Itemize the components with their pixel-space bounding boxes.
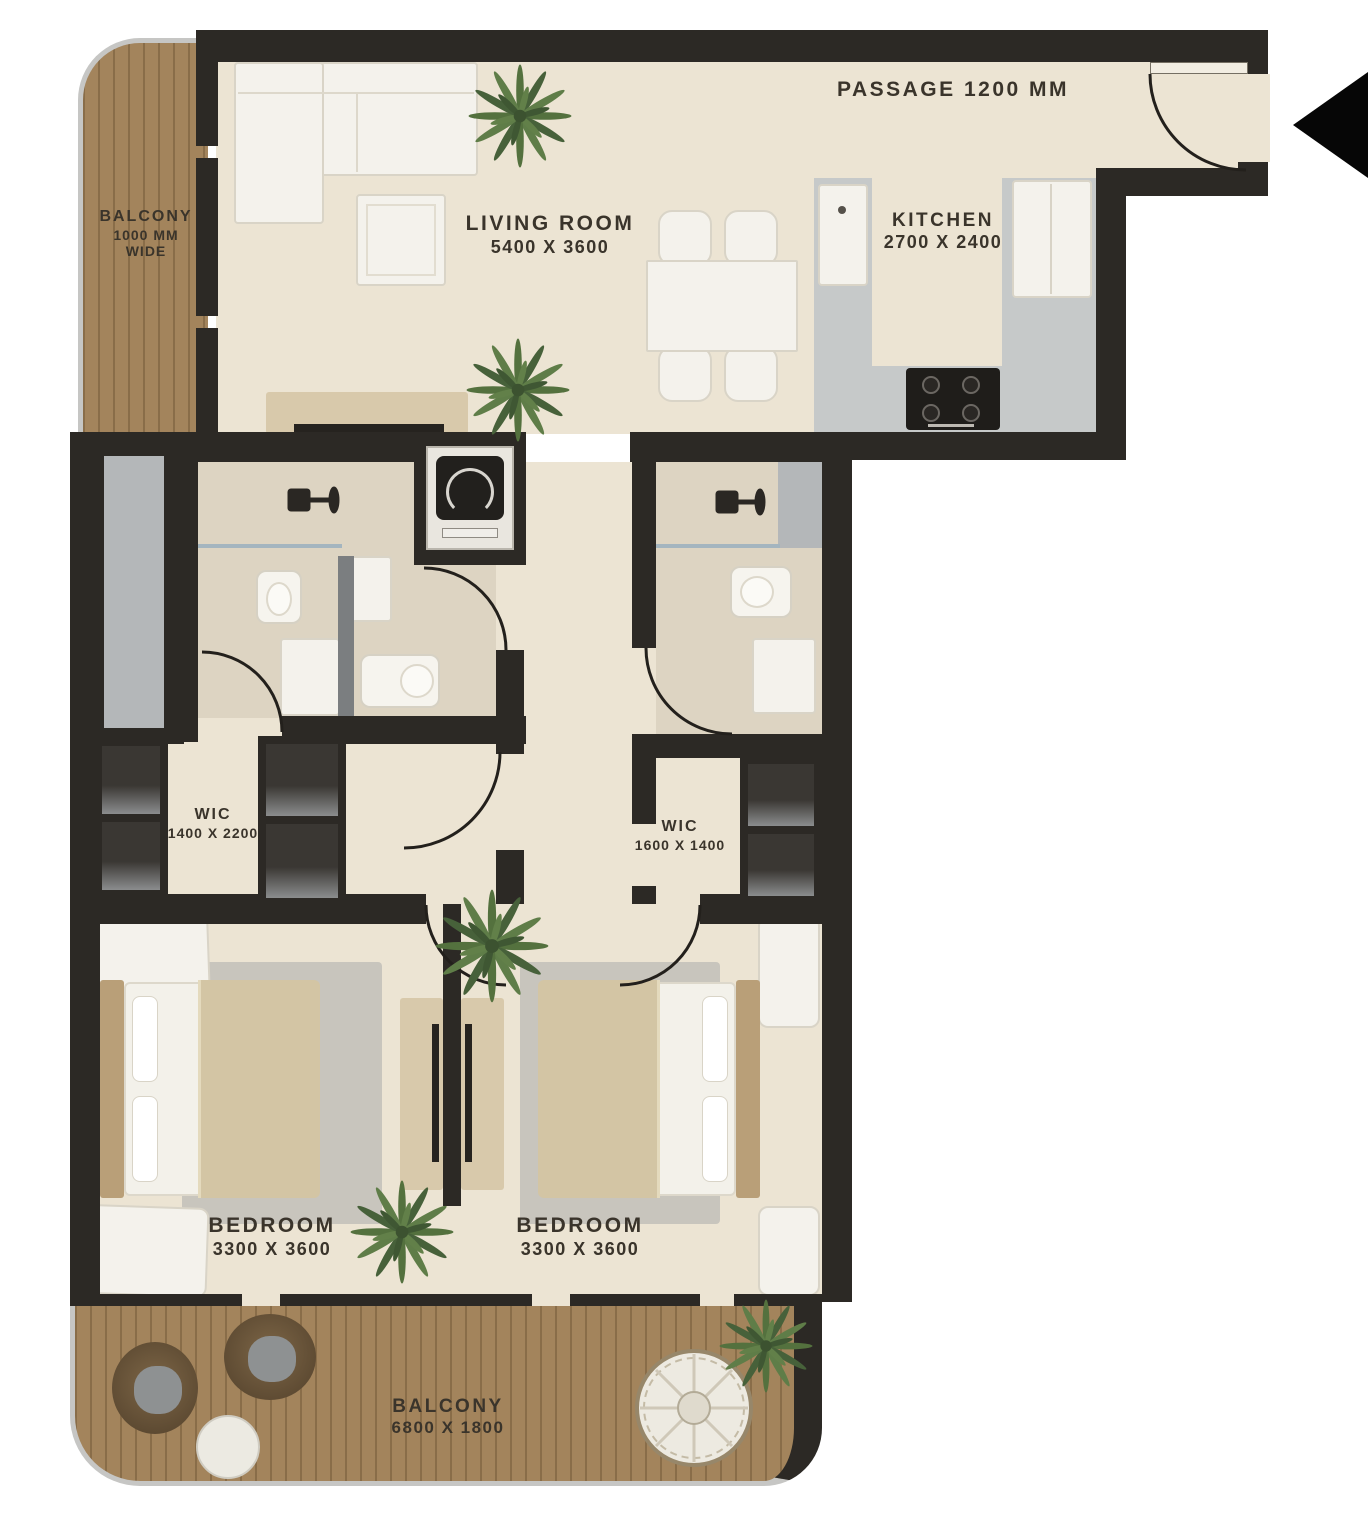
room-dims: 3300 X 3600 bbox=[516, 1239, 643, 1260]
wall-sink bbox=[350, 556, 392, 622]
room-dims: 5400 X 3600 bbox=[466, 237, 635, 258]
chair-cushion bbox=[134, 1366, 182, 1414]
washer-drum-arc bbox=[446, 468, 494, 516]
kitchen-label: KITCHEN 2700 X 2400 bbox=[884, 210, 1003, 254]
room-name: BEDROOM bbox=[516, 1214, 643, 1239]
wall-wic1-right bbox=[496, 850, 524, 904]
shower-glass-right bbox=[656, 544, 780, 548]
window-gap bbox=[242, 1294, 280, 1306]
cooktop bbox=[906, 368, 1000, 430]
entrance-arrow-icon bbox=[1293, 72, 1368, 178]
wall-outer-right bbox=[822, 432, 852, 1302]
room-name: WIC bbox=[635, 818, 725, 837]
toilet bbox=[256, 570, 302, 624]
shelf-box bbox=[102, 746, 160, 814]
lounge-chair bbox=[758, 1206, 820, 1296]
fridge bbox=[1012, 180, 1092, 298]
shelf-box bbox=[102, 822, 160, 890]
dining-chair bbox=[658, 346, 712, 402]
wall-segment bbox=[196, 62, 218, 146]
pillow bbox=[702, 996, 728, 1082]
lounge-chair bbox=[88, 1204, 209, 1298]
toilet bbox=[730, 566, 792, 618]
dining-chair bbox=[724, 210, 778, 266]
entry-gap-floor bbox=[1240, 74, 1270, 162]
blanket bbox=[198, 980, 320, 1198]
bed-right bbox=[538, 980, 760, 1198]
wall-corridor-left bbox=[496, 650, 524, 718]
wardrobe-handle bbox=[432, 1024, 439, 1162]
window-gap bbox=[700, 1294, 734, 1306]
wall-mid-top bbox=[630, 432, 852, 462]
room-name: KITCHEN bbox=[884, 210, 1003, 232]
burner bbox=[922, 376, 940, 394]
room-name: LIVING ROOM bbox=[466, 212, 635, 237]
passage-label: PASSAGE 1200 MM bbox=[837, 78, 1069, 103]
window-gap bbox=[532, 1294, 570, 1306]
floor-plan: BALCONY 1000 MM WIDE LIVING ROOM 5400 X … bbox=[0, 0, 1372, 1526]
balcony-top-label: BALCONY 1000 MM WIDE bbox=[99, 208, 192, 260]
room-name: BALCONY bbox=[99, 208, 192, 227]
shaft-panel bbox=[104, 456, 164, 728]
wall-bedrooms-top bbox=[700, 894, 822, 924]
lounge-chair bbox=[758, 916, 820, 1028]
dining-chair bbox=[724, 346, 778, 402]
room-dims: 2700 X 2400 bbox=[884, 232, 1003, 253]
island-faucet bbox=[838, 206, 846, 214]
room-dims: 1600 X 1400 bbox=[635, 837, 725, 854]
headboard bbox=[100, 980, 124, 1198]
bed-left bbox=[100, 980, 322, 1198]
room-name: BEDROOM bbox=[208, 1214, 335, 1239]
shelf-box bbox=[748, 834, 814, 896]
room-dims: WIDE bbox=[99, 243, 192, 260]
island-sink-unit bbox=[818, 184, 868, 286]
wardrobe-handle bbox=[465, 1024, 472, 1162]
vanity-sink bbox=[280, 638, 340, 716]
room-name: WIC bbox=[168, 806, 258, 825]
vanity-sink bbox=[752, 638, 816, 714]
wall-bedroom-divider bbox=[443, 904, 461, 1206]
wall-bath2-left bbox=[632, 462, 656, 648]
room-dims: 6800 X 1800 bbox=[392, 1418, 505, 1438]
wall-bath1-bottom bbox=[282, 716, 526, 744]
pillow bbox=[132, 996, 158, 1082]
cooktop-controls bbox=[928, 424, 974, 427]
burner bbox=[962, 376, 980, 394]
dining-table bbox=[646, 260, 798, 352]
entrance-door-leaf bbox=[1150, 62, 1248, 74]
wic-left-label: WIC 1400 X 2200 bbox=[168, 806, 258, 841]
dining-chair bbox=[658, 210, 712, 266]
shower-panel-right bbox=[778, 458, 822, 548]
headboard bbox=[736, 980, 760, 1198]
room-dims: 1000 MM bbox=[99, 227, 192, 244]
shower-glass-left bbox=[196, 544, 342, 548]
sofa-chaise bbox=[234, 62, 324, 224]
shelf-box bbox=[266, 744, 338, 816]
fridge-door-line bbox=[1050, 184, 1052, 294]
shelf-box bbox=[748, 764, 814, 826]
wall-segment bbox=[196, 158, 218, 316]
balcony-side-table bbox=[196, 1415, 260, 1479]
wall-kitchen-bottom bbox=[845, 432, 1126, 460]
wall-top bbox=[196, 30, 1268, 62]
shelf-box bbox=[266, 824, 338, 898]
pillow bbox=[702, 1096, 728, 1182]
bedroom-left-label: BEDROOM 3300 X 3600 bbox=[208, 1214, 335, 1260]
bath-divider-gray bbox=[338, 556, 354, 728]
wic-right-label: WIC 1600 X 1400 bbox=[635, 818, 725, 853]
living-room-label: LIVING ROOM 5400 X 3600 bbox=[466, 212, 635, 258]
wall-bath2-bottom bbox=[632, 734, 824, 758]
room-dims: 3300 X 3600 bbox=[208, 1239, 335, 1260]
coffee-table-inner bbox=[366, 204, 436, 276]
pillow bbox=[132, 1096, 158, 1182]
chair-cushion bbox=[248, 1336, 296, 1382]
wall-wic2-left bbox=[632, 886, 656, 904]
blanket bbox=[538, 980, 660, 1198]
wall-wic1-right bbox=[496, 744, 524, 754]
burner bbox=[922, 404, 940, 422]
bedroom-right-label: BEDROOM 3300 X 3600 bbox=[516, 1214, 643, 1260]
room-name: PASSAGE 1200 MM bbox=[837, 78, 1069, 103]
balcony-bottom-label: BALCONY 6800 X 1800 bbox=[392, 1396, 505, 1438]
room-name: BALCONY bbox=[392, 1396, 505, 1418]
bidet bbox=[360, 654, 440, 708]
wall-kitchen-right bbox=[1096, 168, 1126, 460]
washer-controls bbox=[442, 528, 498, 538]
wall-segment bbox=[168, 432, 198, 742]
wall-wic2-left bbox=[632, 758, 656, 824]
wall-segment bbox=[196, 328, 218, 442]
wall-bedrooms-top bbox=[96, 894, 426, 924]
room-dims: 1400 X 2200 bbox=[168, 825, 258, 842]
burner bbox=[962, 404, 980, 422]
sofa-cushion-line bbox=[356, 94, 358, 172]
